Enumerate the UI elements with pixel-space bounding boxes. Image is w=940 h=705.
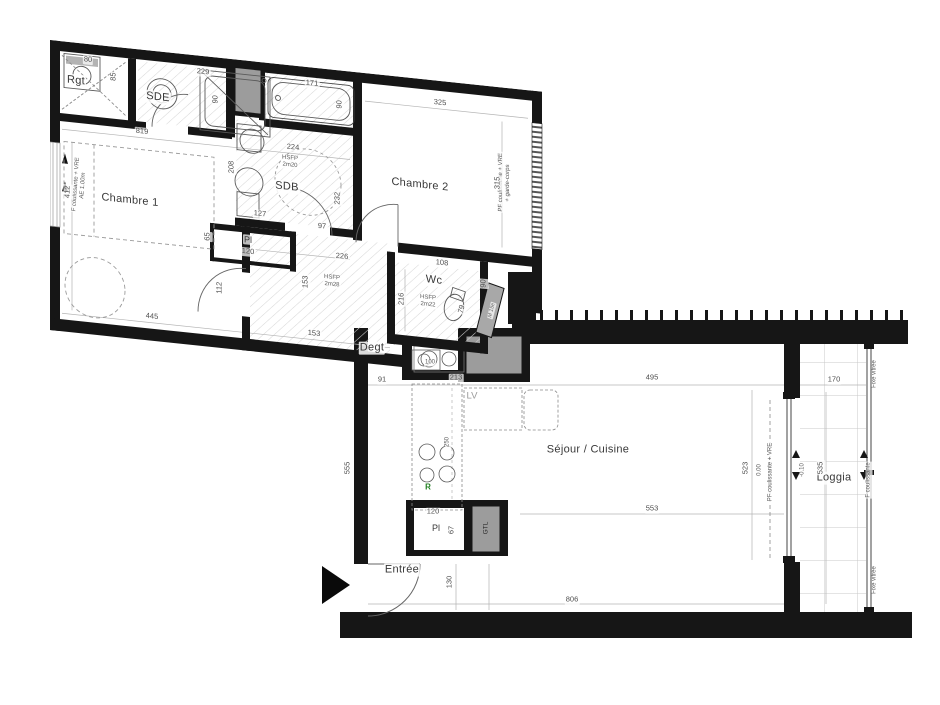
left-wing-drawing (50, 40, 550, 413)
window-sejour-loggia (770, 392, 795, 563)
tiled-floors (138, 59, 480, 363)
loggia-floor (800, 344, 866, 612)
left-wing: RgtSDESDBChambre 1Chambre 2WcHSFP 2m20HS… (50, 40, 550, 413)
entrance-arrow-icon (322, 566, 350, 604)
window-chambre1 (50, 142, 68, 228)
window-chambre2 (532, 123, 542, 250)
entrance-door (368, 564, 420, 616)
floor-plan: RgtSDESDBChambre 1Chambre 2WcHSFP 2m20HS… (0, 0, 940, 705)
gtl-duct (472, 506, 500, 552)
